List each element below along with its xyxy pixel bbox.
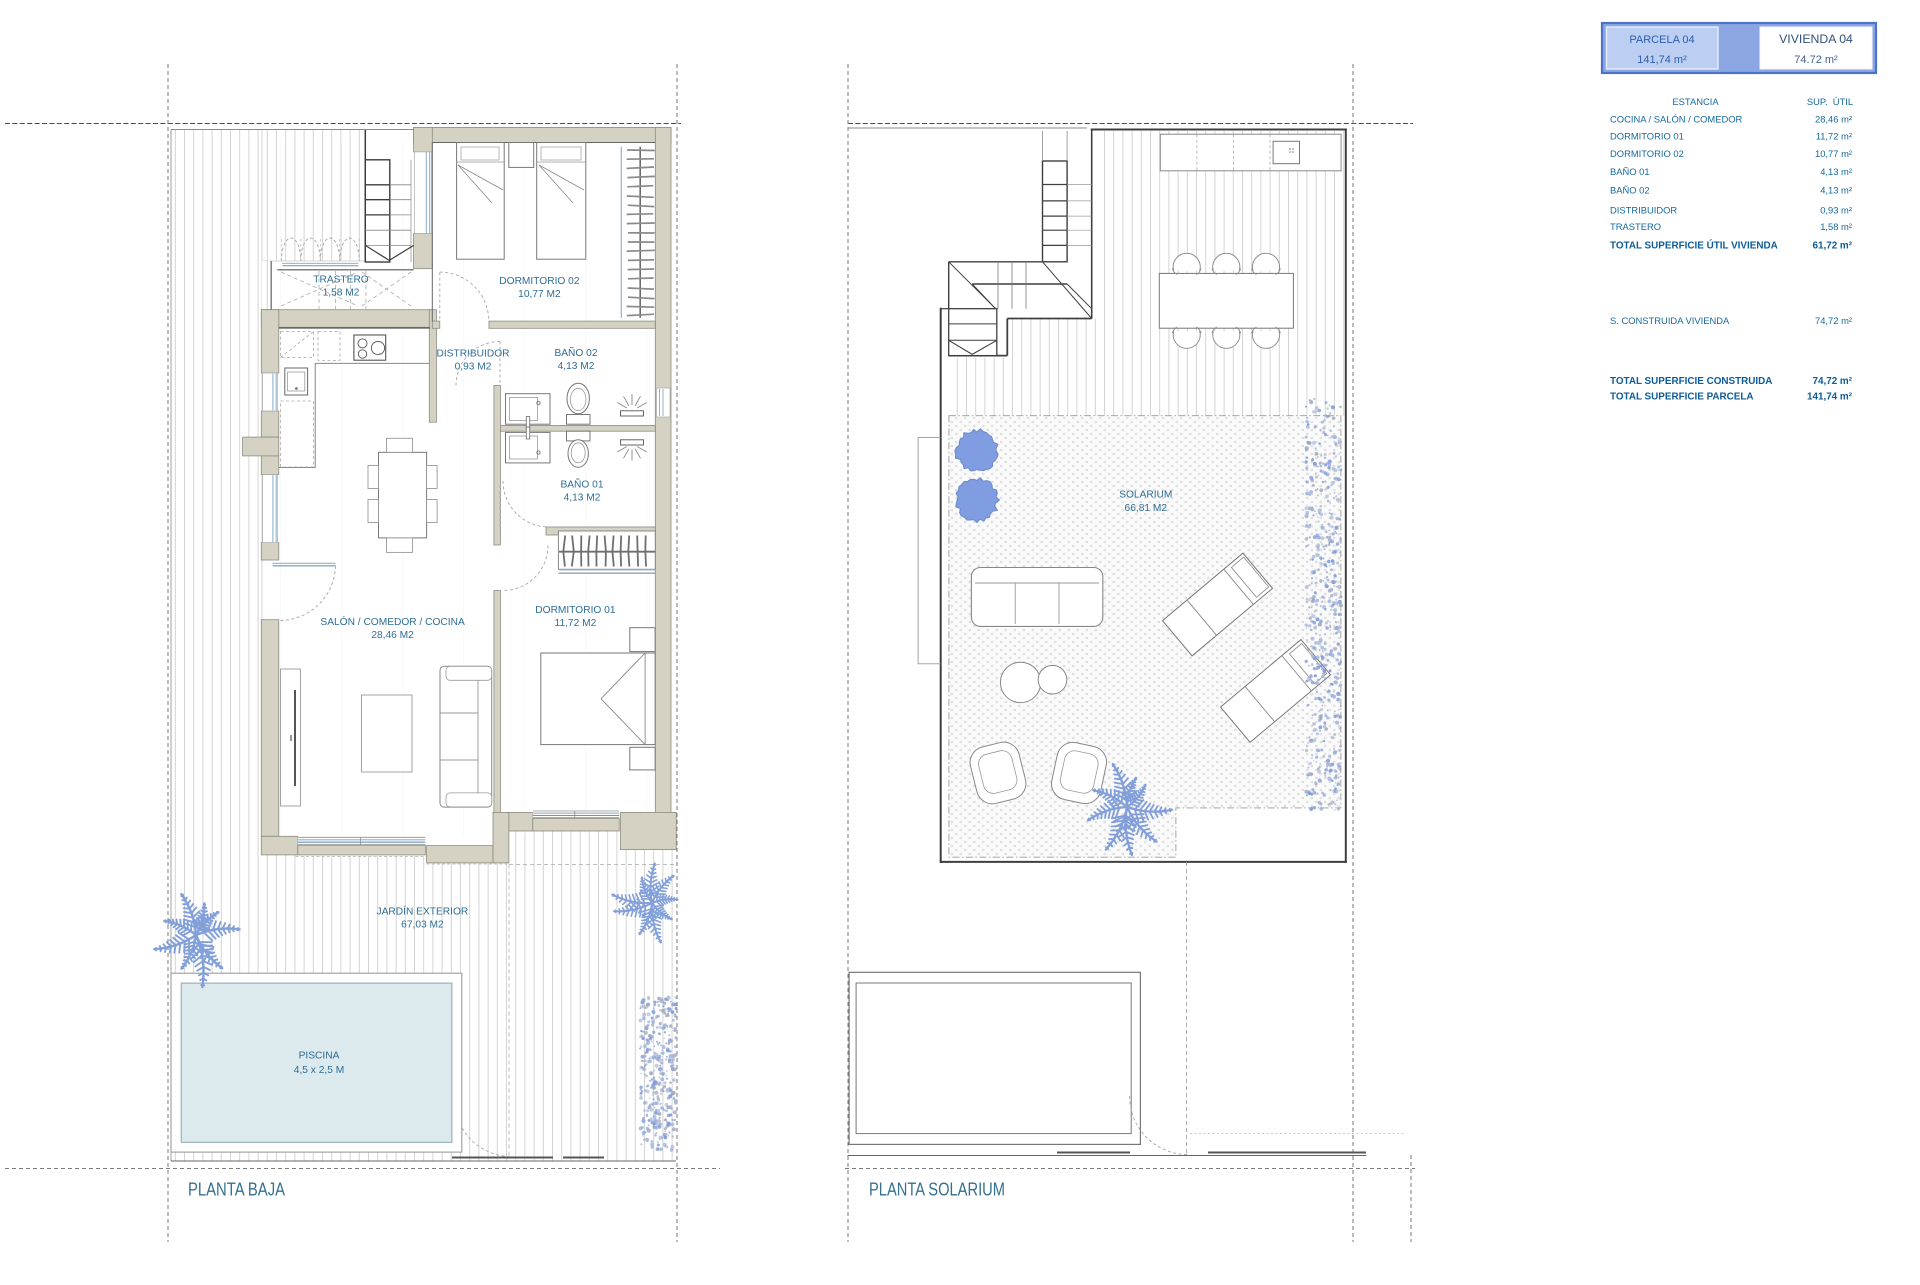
svg-text:4,13 m²: 4,13 m²: [1820, 166, 1852, 177]
svg-text:PISCINA: PISCINA: [299, 1051, 340, 1062]
svg-text:DISTRIBUIDOR: DISTRIBUIDOR: [436, 349, 509, 360]
svg-text:DORMITORIO 02: DORMITORIO 02: [1610, 148, 1684, 159]
svg-text:TOTAL SUPERFICIE CONSTRUIDA: TOTAL SUPERFICIE CONSTRUIDA: [1610, 376, 1772, 387]
svg-text:BAÑO 02: BAÑO 02: [1610, 185, 1650, 196]
svg-text:10,77 m²: 10,77 m²: [1815, 148, 1852, 159]
svg-text:0,93 m²: 0,93 m²: [1820, 205, 1852, 216]
svg-text:61,72 m²: 61,72 m²: [1812, 241, 1852, 252]
svg-text:141,74 m²: 141,74 m²: [1807, 392, 1853, 403]
svg-text:DORMITORIO 01: DORMITORIO 01: [535, 605, 616, 616]
svg-text:11,72 m²: 11,72 m²: [1816, 131, 1852, 142]
svg-text:SUP. ÚTIL: SUP. ÚTIL: [1807, 96, 1853, 107]
svg-text:74.72 m²: 74.72 m²: [1794, 54, 1838, 66]
svg-text:PLANTA SOLARIUM: PLANTA SOLARIUM: [869, 1179, 1005, 1200]
svg-text:4,5 x 2,5 M: 4,5 x 2,5 M: [294, 1065, 344, 1076]
svg-text:BAÑO 01: BAÑO 01: [1610, 166, 1650, 177]
svg-text:DORMITORIO 01: DORMITORIO 01: [1610, 131, 1684, 142]
svg-text:67,03 M2: 67,03 M2: [401, 920, 444, 931]
svg-text:ESTANCIA: ESTANCIA: [1672, 96, 1719, 107]
svg-text:28,46 m²: 28,46 m²: [1815, 114, 1852, 125]
svg-text:COCINA / SALÓN / COMEDOR: COCINA / SALÓN / COMEDOR: [1610, 114, 1743, 125]
svg-text:BAÑO 01: BAÑO 01: [560, 478, 603, 491]
svg-text:1,58 m²: 1,58 m²: [1820, 221, 1852, 232]
svg-text:28,46 M2: 28,46 M2: [371, 630, 414, 641]
svg-text:TRASTERO: TRASTERO: [313, 275, 369, 286]
svg-text:DISTRIBUIDOR: DISTRIBUIDOR: [1610, 205, 1677, 216]
svg-text:10,77 M2: 10,77 M2: [518, 289, 561, 300]
svg-text:1,58 M2: 1,58 M2: [323, 288, 360, 299]
svg-text:BAÑO 02: BAÑO 02: [554, 346, 597, 359]
svg-text:11,72 M2: 11,72 M2: [555, 618, 597, 629]
svg-text:TRASTERO: TRASTERO: [1610, 221, 1661, 232]
svg-text:TOTAL SUPERFICIE ÚTIL VIVIENDA: TOTAL SUPERFICIE ÚTIL VIVIENDA: [1610, 240, 1778, 252]
svg-text:S. CONSTRUIDA VIVIENDA: S. CONSTRUIDA VIVIENDA: [1610, 315, 1730, 326]
svg-text:74,72 m²: 74,72 m²: [1815, 315, 1852, 326]
svg-text:DORMITORIO 02: DORMITORIO 02: [499, 276, 580, 287]
svg-text:SALÓN / COMEDOR / COCINA: SALÓN / COMEDOR / COCINA: [320, 615, 465, 628]
svg-text:66,81 M2: 66,81 M2: [1125, 503, 1168, 514]
svg-text:SOLARIUM: SOLARIUM: [1119, 490, 1172, 501]
svg-text:4,13 M2: 4,13 M2: [558, 361, 595, 372]
svg-text:PARCELA 04: PARCELA 04: [1629, 34, 1694, 46]
svg-text:141,74 m²: 141,74 m²: [1637, 54, 1687, 66]
svg-text:JARDÍN EXTERIOR: JARDÍN EXTERIOR: [377, 905, 469, 918]
svg-text:PLANTA BAJA: PLANTA BAJA: [188, 1179, 286, 1200]
svg-text:74,72 m²: 74,72 m²: [1812, 376, 1852, 387]
svg-text:VIVIENDA 04: VIVIENDA 04: [1779, 32, 1853, 46]
svg-text:4,13 M2: 4,13 M2: [564, 493, 601, 504]
svg-text:4,13 m²: 4,13 m²: [1820, 185, 1852, 196]
svg-text:TOTAL SUPERFICIE PARCELA: TOTAL SUPERFICIE PARCELA: [1610, 392, 1754, 403]
